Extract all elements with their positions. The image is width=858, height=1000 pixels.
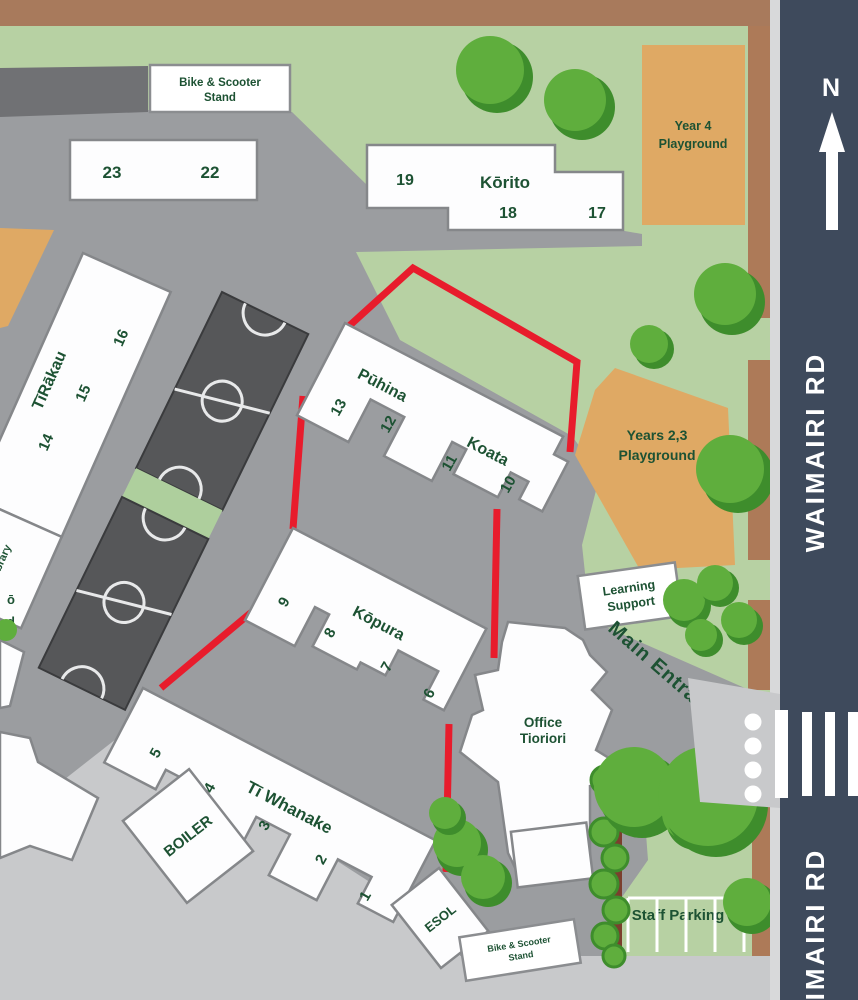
crossing-bar	[775, 710, 788, 798]
tree-icon	[685, 619, 717, 651]
room-number: 22	[201, 163, 220, 182]
years23-playground-label: Years 2,3	[627, 427, 688, 443]
road-name-label: WAIMAIRI RD	[800, 352, 830, 553]
bottom-footpath	[0, 956, 772, 1000]
road-name-label-partial: WAIMAIRI RD	[800, 848, 830, 1000]
tree-icon	[429, 797, 461, 829]
crossing-bar	[825, 712, 835, 796]
year4-playground-area	[642, 45, 745, 225]
tree-icon	[544, 69, 606, 131]
bush-icon	[602, 845, 628, 871]
partial-label: ō	[7, 592, 15, 607]
top-berm	[0, 0, 772, 26]
bollard-dot	[745, 714, 762, 731]
crossing-bar	[848, 712, 858, 796]
compass-north-label: N	[822, 74, 840, 102]
room-number: 23	[103, 163, 122, 182]
crossing-bar	[802, 712, 812, 796]
crossing-footpath	[688, 678, 780, 808]
sign-label: Stand	[204, 92, 236, 104]
tree-icon	[697, 565, 733, 601]
tree-icon	[456, 36, 524, 104]
tree-icon	[696, 435, 764, 503]
map-canvas: 23 22 19 Kōrito 18 17 16 15 14 TīRākau T…	[0, 0, 858, 1000]
road-berm	[748, 26, 772, 318]
bollard-dot	[745, 762, 762, 779]
building-label: Tioriori	[520, 731, 566, 746]
building-23-22	[70, 140, 257, 200]
bollard-dot	[745, 738, 762, 755]
tree-icon	[723, 878, 771, 926]
tree-icon	[461, 855, 505, 899]
room-number: 17	[588, 205, 606, 222]
year4-playground-label: Playground	[659, 137, 728, 151]
bollard-dot	[745, 786, 762, 803]
room-number: 18	[499, 205, 517, 222]
tree-icon	[630, 325, 668, 363]
bush-icon	[590, 870, 618, 898]
tree-icon	[694, 263, 756, 325]
school-campus-map: 23 22 19 Kōrito 18 17 16 15 14 TīRākau T…	[0, 0, 858, 1000]
tree-icon	[721, 602, 757, 638]
dark-paving-wedge	[0, 66, 148, 117]
kerb-line	[770, 0, 780, 1000]
years23-playground-label: Playground	[618, 447, 695, 463]
bike-scooter-sign-top: Bike & Scooter Stand	[150, 65, 290, 112]
small-unlabeled-building	[511, 823, 593, 888]
room-number: 19	[396, 172, 414, 189]
sign-label: Bike & Scooter	[179, 77, 261, 89]
bush-icon	[603, 945, 625, 967]
staff-parking-label: Staff Parking	[632, 907, 725, 924]
building-label: Office	[524, 715, 563, 730]
building-label: Kōrito	[480, 173, 530, 192]
year4-playground-label: Year 4	[675, 119, 712, 133]
bush-icon	[603, 897, 629, 923]
